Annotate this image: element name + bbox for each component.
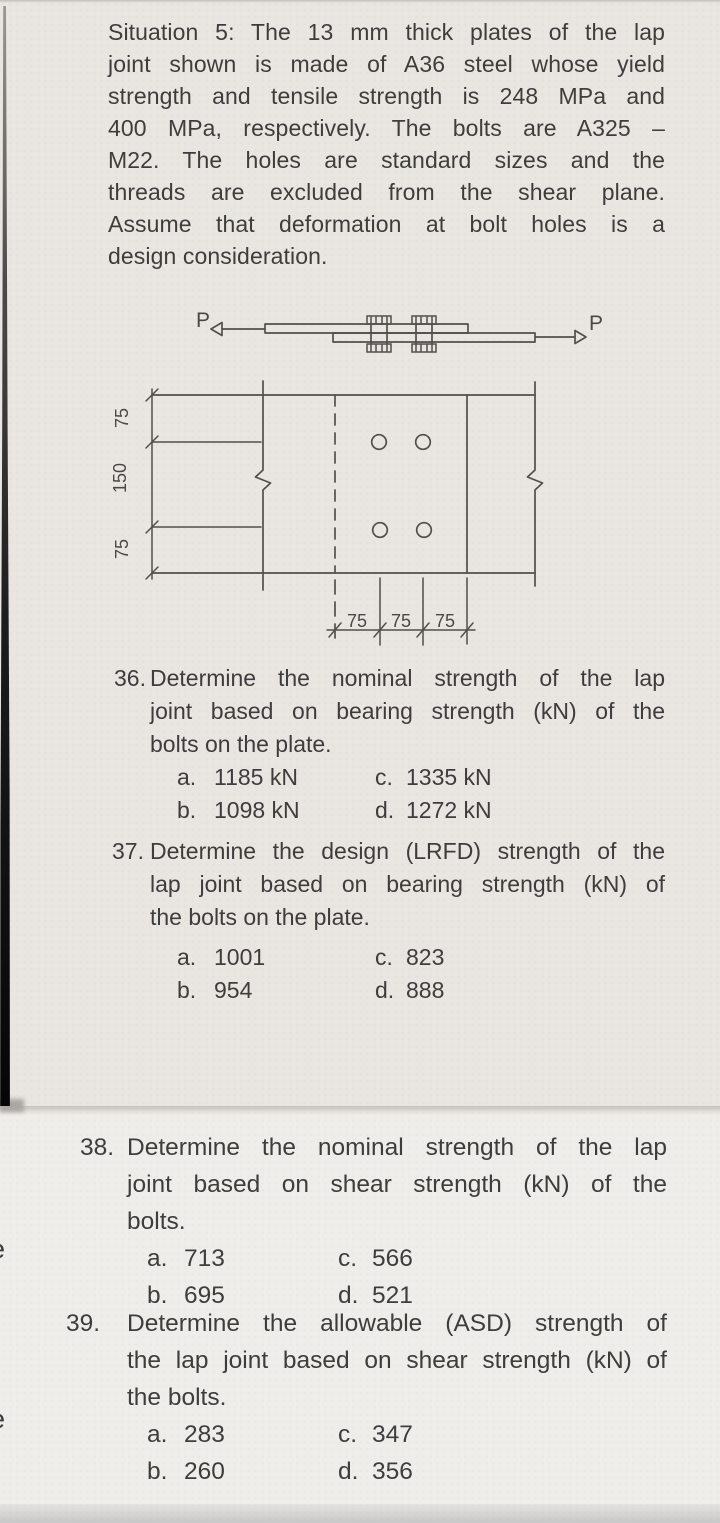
choice-value: 888 [406,974,444,1007]
scanned-exam-page: Situation 5: The 13 mm thick plates of t… [0,0,720,1523]
choice-row: b. 954 d. 888 [150,974,665,1007]
dim-label-75-top: 75 [112,408,132,428]
situation-paragraph: Situation 5: The 13 mm thick plates of t… [108,16,665,272]
choices: a. 283 c. 347 b. 260 d. 356 [127,1416,667,1490]
choices: a. 1185 kN c. 1335 kN b. 1098 kN d. 1272… [150,761,665,827]
choice-row: a. 1001 c. 823 [150,941,665,974]
choice-b: b. 260 [147,1453,338,1490]
question-line: bolts. [127,1203,667,1240]
book-spine-shadow [0,0,12,1110]
bolt-hole [416,435,431,450]
choice-value: 283 [184,1416,225,1453]
choices: a. 713 c. 566 b. 695 d. 521 [127,1240,667,1314]
dim-label-75-left: 75 [347,611,367,631]
question-line: Determine the nominal strength of the la… [127,1129,667,1166]
choice-b: b. 954 [177,974,375,1007]
paragraph-line: Assume that deformation at bolt holes is… [108,208,665,240]
choice-a: a. 283 [147,1416,338,1453]
choice-value: 566 [372,1240,413,1277]
paragraph-line: joint shown is made of A36 steel whose y… [108,48,665,80]
choice-label: a. [177,761,214,794]
choice-label: c. [338,1240,372,1277]
choice-label: c. [375,941,406,974]
question-line: the bolts on the plate. [150,901,665,934]
dim-label-150: 150 [110,463,130,493]
choice-label: d. [375,974,406,1007]
choice-value: 1272 kN [406,794,492,827]
question-line: bolts on the plate. [150,728,665,761]
choice-row: b. 1098 kN d. 1272 kN [150,794,665,827]
choice-value: 347 [372,1416,413,1453]
choice-value: 823 [406,941,444,974]
paragraph-line: Situation 5: The 13 mm thick plates of t… [108,16,665,48]
choice-c: c. 1335 kN [375,761,492,794]
bolt-elevation [367,316,391,352]
right-break-line [528,382,543,586]
choice-d: d. 888 [375,974,444,1007]
choice-c: c. 566 [338,1240,413,1277]
edge-text-fragment: e [0,1234,5,1265]
choice-label: b. [177,974,214,1007]
choice-a: a. 713 [147,1240,338,1277]
choice-label: b. [147,1453,184,1490]
choice-c: c. 823 [375,941,444,974]
choice-label: c. [338,1416,372,1453]
horizontal-dimension: 75 75 75 [327,578,475,645]
vertical-dimension: 75 150 75 [110,389,261,579]
bolt-hole [372,435,387,450]
choice-label: a. [177,941,214,974]
right-arrowhead-icon [575,331,586,344]
question-number: 38. [80,1129,114,1166]
elevation-lower-plate [333,333,535,342]
question-number: 36. [114,662,146,695]
choice-c: c. 347 [338,1416,413,1453]
choice-value: 954 [214,974,252,1007]
choice-d: d. 356 [338,1453,413,1490]
paragraph-line: design consideration. [108,240,665,272]
choice-row: b. 260 d. 356 [127,1453,667,1490]
choice-row: a. 1185 kN c. 1335 kN [150,761,665,794]
dim-label-75-mid: 75 [391,611,411,631]
left-arrowhead-icon [211,323,222,336]
lap-joint-diagram: P [80,280,660,660]
paragraph-line: threads are excluded from the shear plan… [108,176,665,208]
elevation-view: P [196,309,603,352]
question-line: joint based on shear strength (kN) of th… [127,1166,667,1203]
left-break-line [256,381,271,590]
load-label-right: P [589,312,603,335]
choice-value: 1185 kN [214,761,298,794]
question-line: joint based on bearing strength (kN) of … [150,695,665,728]
paragraph-line: M22. The holes are standard sizes and th… [108,144,665,176]
choice-label: d. [338,1453,372,1490]
choice-b: b. 1098 kN [177,794,375,827]
question-number: 39. [66,1305,100,1342]
choice-d: d. 1272 kN [375,794,492,827]
choice-label: c. [375,761,406,794]
dim-label-75-right: 75 [435,611,455,631]
scan-top-edge-shadow [0,0,720,3]
question-line: Determine the allowable (ASD) strength o… [127,1305,667,1342]
question-line: Determine the design (LRFD) strength of … [150,835,665,868]
choice-label: b. [177,794,214,827]
paragraph-line: 400 MPa, respectively. The bolts are A32… [108,112,665,144]
dim-label-75-bottom: 75 [112,539,132,559]
question-line: the bolts. [127,1379,667,1416]
scan-seam-shadow [0,1106,720,1115]
choice-label: a. [147,1240,184,1277]
scan-bottom-edge-shadow [0,1504,720,1523]
choices: a. 1001 c. 823 b. 954 d. 888 [150,941,665,1007]
plan-view: 75 150 75 75 75 75 [110,381,543,645]
choice-value: 356 [372,1453,413,1490]
question-line: Determine the nominal strength of the la… [150,662,665,695]
question-39: 39. Determine the allowable (ASD) streng… [127,1305,667,1490]
question-38: 38. Determine the nominal strength of th… [127,1129,667,1314]
choice-label: d. [375,794,406,827]
question-37: 37. Determine the design (LRFD) strength… [150,835,665,1007]
question-number: 37. [112,835,144,868]
choice-value: 1001 [214,941,265,974]
bolt-hole [417,523,432,538]
bolt-elevation [412,316,436,352]
choice-label: a. [147,1416,184,1453]
question-36: 36. Determine the nominal strength of th… [150,662,665,827]
question-line: the lap joint based on shear strength (k… [127,1342,667,1379]
bolt-hole [373,523,388,538]
choice-value: 713 [184,1240,225,1277]
choice-row: a. 283 c. 347 [127,1416,667,1453]
paragraph-line: strength and tensile strength is 248 MPa… [108,80,665,112]
spine-shadow-shape [0,6,10,1106]
choice-a: a. 1001 [177,941,375,974]
choice-value: 1335 kN [406,761,492,794]
elevation-upper-plate [265,324,468,333]
choice-value: 260 [184,1453,225,1490]
choice-value: 1098 kN [214,794,300,827]
choice-a: a. 1185 kN [177,761,375,794]
load-label-left: P [196,309,210,332]
choice-row: a. 713 c. 566 [127,1240,667,1277]
question-line: lap joint based on bearing strength (kN)… [150,868,665,901]
edge-text-fragment: e [0,1404,5,1435]
